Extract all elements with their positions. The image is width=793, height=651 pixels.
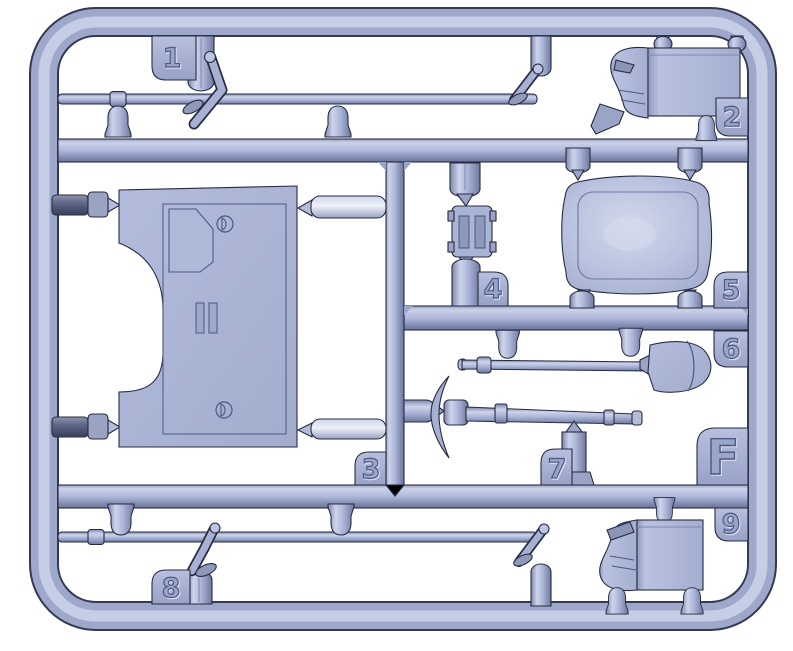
model-kit-sprue-photo: 1 1 2 2 3 3 4 4 5 5 6 6 7 [0,0,793,651]
tab-6: 6 6 [714,331,748,367]
tab-4: 4 4 [478,272,508,306]
bracket-clip [591,104,624,134]
lower-rail [58,485,748,508]
lever-knob [533,64,543,74]
long-rod [58,94,537,104]
gate-cylinder [566,148,590,173]
dark-cylinder [52,417,88,437]
top-rod-part [58,92,537,138]
box-bracket [611,47,648,118]
rod-coupling [88,530,104,545]
part-number-label: 5 [722,275,741,306]
gate-cone [457,194,473,206]
vertical-runner [386,162,404,485]
light-cylinder [311,196,386,218]
tab-letter-f: F F [697,428,748,487]
bottom-rod-part [58,504,537,545]
sprue-gate [108,504,134,535]
tab-5: 5 5 [714,272,748,308]
side-clip [490,211,496,221]
part-number-label: 7 [548,454,567,485]
part-number-label: 2 [723,102,742,133]
dark-cylinder [52,195,88,215]
part-6-shovel [458,328,711,392]
part-number-label: 4 [484,274,503,305]
gate-cone [572,170,584,180]
sprue-gate [696,116,717,141]
shovel-blade [648,342,711,393]
tab-1: 1 1 [152,36,196,80]
frame-slot [459,216,469,248]
side-clip [448,242,454,252]
gate-cylinder [678,291,702,308]
sprue-gate [654,498,675,523]
gate-cylinder [452,259,480,306]
cylinder-cone [108,420,120,434]
cylinder-cone [298,423,312,437]
tab-7: 7 7 [541,449,572,486]
pick-boss [444,400,468,425]
panel-slot [209,303,217,333]
panel-slot [196,303,204,333]
gate-cylinder [678,148,702,173]
sub-rail [404,306,748,330]
part-number-label: 6 [722,334,741,365]
sprue-gate [496,330,519,358]
sprue-gate [619,328,642,356]
gate-cylinder [531,564,551,606]
tab-9: 9 9 [715,508,748,541]
cylinder-collar [88,192,108,217]
sprue-gate [681,588,703,614]
sprue-gate [606,588,628,614]
frame-slot [475,216,485,248]
tab-2: 2 2 [716,98,748,136]
part-7-pickaxe [404,376,642,485]
lever-knob [539,524,549,534]
part-9-stowage-box [600,498,703,614]
handle-band [495,404,507,423]
part-3-hull-panel [52,186,386,447]
shaft-coupling [477,357,491,373]
part-number-label: 8 [162,573,181,604]
cylinder-cone [298,200,312,216]
long-rod [58,532,537,542]
cylinder-collar [88,414,108,439]
gate-cylinder [570,291,594,308]
cushion-highlight [604,217,656,251]
tab-3: 3 3 [355,452,386,486]
sprue-gate [328,504,354,535]
top-rail [58,139,748,162]
side-clip [490,242,496,252]
tab-8: 8 8 [152,570,190,605]
part-number-label: 9 [722,509,741,540]
rod-coupling [110,92,126,107]
part-number-label: 3 [362,454,381,485]
sprue-letter-label: F [707,430,740,486]
part-number-label: 1 [163,43,182,74]
sprue-render: 1 1 2 2 3 3 4 4 5 5 6 6 7 [0,0,793,651]
bracket-body [452,206,492,257]
sprue-gate [325,106,351,137]
lever-knob [210,523,220,533]
handle-end [632,411,642,425]
light-cylinder [311,419,386,439]
cylinder-cone [108,198,120,212]
lever-knob [205,52,216,63]
handle-band [604,410,614,425]
gate-cone [684,170,696,180]
box-body [637,520,703,590]
part-5-seat-cushion [562,148,712,308]
side-clip [448,211,454,221]
sprue-gate [105,106,131,137]
